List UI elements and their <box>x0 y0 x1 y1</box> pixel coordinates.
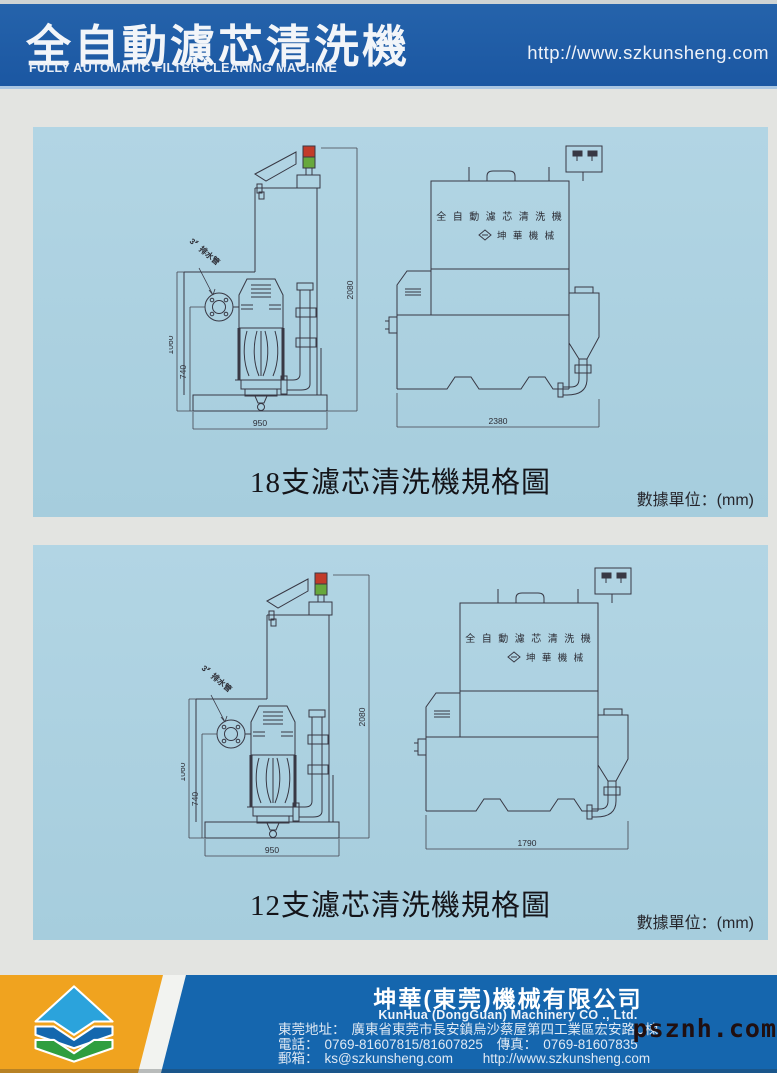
dim-front-width-label: 1790 <box>518 838 537 848</box>
address-label: 東莞地址： <box>278 1022 346 1037</box>
address-value: 廣東省東莞市長安鎮烏沙蔡屋第四工業區宏安路C棟 <box>352 1022 659 1037</box>
dim-width-label: 950 <box>265 845 279 855</box>
signal-light-red-icon <box>315 573 327 584</box>
footer-phone-line: 電話：0769-81607815/81607825 傳真：0769-816078… <box>278 1038 658 1053</box>
machine-name-label: 全 自 動 濾 芯 清 洗 機 <box>465 632 593 645</box>
footer-address-line: 東莞地址：廣東省東莞市長安鎮烏沙蔡屋第四工業區宏安路C棟 <box>278 1023 658 1038</box>
unit-label-18: 數據單位：(mm) <box>637 486 754 510</box>
dim-front-width-label: 2380 <box>489 416 508 426</box>
footer-contact-lines: 東莞地址：廣東省東莞市長安鎮烏沙蔡屋第四工業區宏安路C棟 電話：0769-816… <box>278 1023 658 1067</box>
brand-name-label: 坤 華 機 械 <box>526 652 585 664</box>
website-value: http://www.szkunsheng.com <box>483 1051 650 1066</box>
panel-12-cartridge: 2080 1060 740 950 3〞排水管 <box>33 545 768 940</box>
front-view-drawing-18: 全 自 動 濾 芯 清 洗 機 坤 華 機 械 2380 <box>373 143 663 443</box>
header-website-url: http://www.szkunsheng.com <box>527 42 769 64</box>
phone-label: 電話： <box>278 1037 319 1052</box>
watermark: psznh.com <box>633 1014 777 1043</box>
dim-inner-height-label: 740 <box>190 792 200 806</box>
dim-inner-height-label: 740 <box>178 365 188 379</box>
dim-left-height-label: 1060 <box>181 762 187 781</box>
phone-value: 0769-81607815/81607825 <box>325 1037 483 1052</box>
email-label: 郵箱： <box>278 1051 319 1066</box>
email-value: ks@szkunsheng.com <box>325 1051 454 1066</box>
signal-light-green-icon <box>303 157 315 168</box>
fax-label: 傳真： <box>497 1037 538 1052</box>
company-logo <box>18 983 130 1065</box>
unit-label-12: 數據單位：(mm) <box>637 909 754 933</box>
side-view-drawing-12: 2080 1060 740 950 3〞排水管 <box>181 567 381 872</box>
brand-diamond-icon <box>479 230 491 240</box>
brand-diamond-icon <box>508 652 520 662</box>
brand-name-label: 坤 華 機 械 <box>497 230 556 242</box>
fax-value: 0769-81607835 <box>543 1037 638 1052</box>
drain-pipe-label: 3〞排水管 <box>200 663 234 694</box>
machine-name-label: 全 自 動 濾 芯 清 洗 機 <box>436 210 564 223</box>
dim-width-label: 950 <box>253 418 267 428</box>
side-view-drawing-18: 2080 1060 740 950 3〞排水管 <box>169 140 369 445</box>
panel-18-cartridge: 2080 1060 740 950 3〞排水管 <box>33 127 768 517</box>
signal-light-green-icon <box>315 584 327 595</box>
drain-pipe-label: 3〞排水管 <box>188 236 222 267</box>
front-view-drawing-12: 全 自 動 濾 芯 清 洗 機 坤 華 機 械 1790 <box>411 565 683 865</box>
dim-left-height-label: 1060 <box>169 335 175 354</box>
signal-light-red-icon <box>303 146 315 157</box>
page-subtitle: FULLY AUTOMATIC FILTER CLEANING MACHINE <box>29 61 337 75</box>
dim-height-label: 2080 <box>357 707 367 726</box>
dim-height-label: 2080 <box>345 280 355 299</box>
page-header: 全自動濾芯清洗機 FULLY AUTOMATIC FILTER CLEANING… <box>0 0 777 89</box>
footer-email-line: 郵箱：ks@szkunsheng.com http://www.szkunshe… <box>278 1052 658 1067</box>
brochure-page: 全自動濾芯清洗機 FULLY AUTOMATIC FILTER CLEANING… <box>0 0 777 1073</box>
